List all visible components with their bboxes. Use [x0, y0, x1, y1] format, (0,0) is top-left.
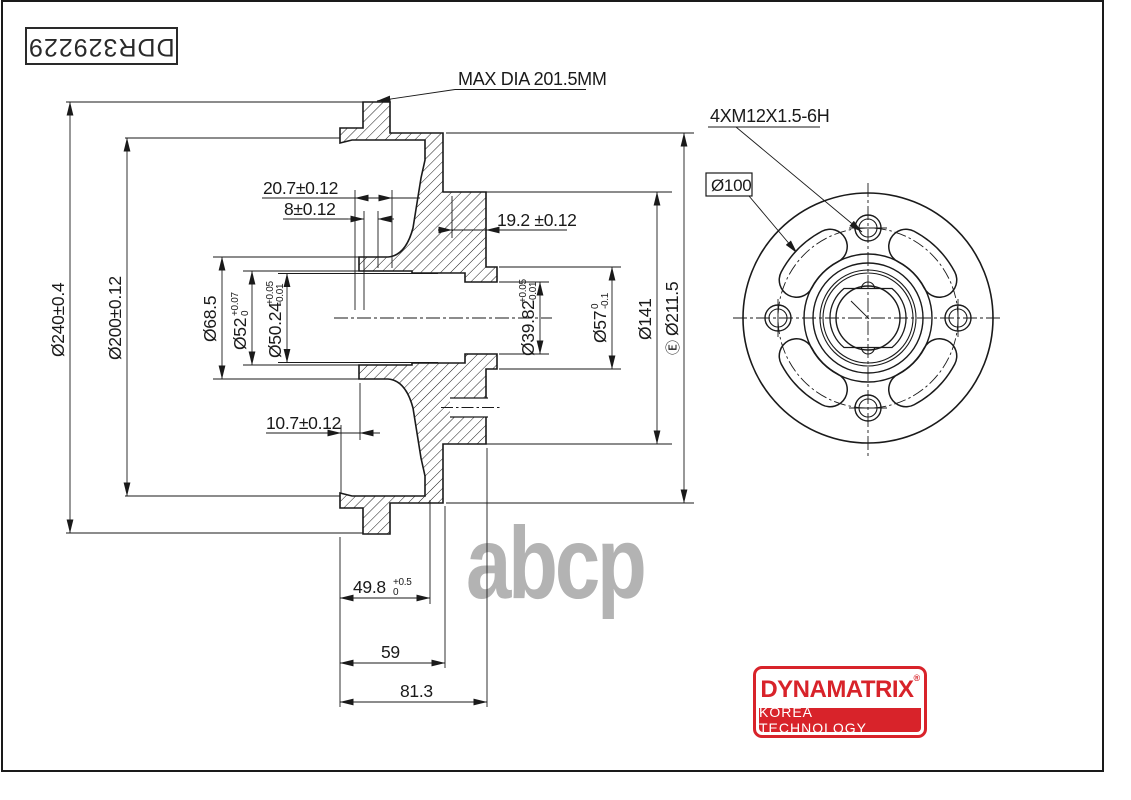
svg-text:Ø211.5: Ø211.5 [662, 282, 682, 336]
svg-text:Ø39.82: Ø39.82 [518, 300, 538, 356]
drawing-sheet: abcp DDR329229 DYNAMATRIX® KOREA TECHNOL… [0, 0, 1131, 800]
dim-l49-8: 49.8 +0.5 0 [353, 577, 412, 598]
dim-d50-24: Ø50.24 +0.05 -0.01 [265, 280, 286, 358]
dim-d211-5: Ⓔ Ø211.5 [662, 282, 682, 355]
dim-d68-5: Ø68.5 [200, 296, 220, 342]
dim-d57: Ø57 0 -0.1 [590, 292, 611, 343]
technical-drawing: MAX DIA 201.5MM 4XM12X1.5-6H Ø100 Ø240±0… [0, 0, 1131, 800]
bolt-circle-label: Ø100 [711, 176, 751, 195]
part-number: DDR329229 [28, 32, 175, 61]
dim-l81-3: 81.3 [400, 681, 433, 701]
dim-l8: 8±0.12 [284, 199, 336, 219]
brand-name: DYNAMATRIX® [756, 669, 924, 706]
brand-logo: DYNAMATRIX® KOREA TECHNOLOGY [753, 666, 927, 738]
svg-text:0: 0 [240, 310, 251, 316]
svg-text:49.8: 49.8 [353, 577, 386, 597]
thread-label: 4XM12X1.5-6H [710, 106, 829, 126]
svg-text:Ø50.24: Ø50.24 [265, 302, 285, 358]
svg-text:Ⓔ: Ⓔ [665, 340, 682, 355]
dim-d200: Ø200±0.12 [105, 276, 125, 360]
dim-l19-2: 19.2 ±0.12 [497, 210, 577, 230]
dim-l59: 59 [381, 642, 400, 662]
brand-tagline: KOREA TECHNOLOGY [759, 708, 921, 732]
svg-text:Ø57: Ø57 [590, 311, 610, 343]
dim-d240: Ø240±0.4 [48, 282, 68, 357]
dim-d52: Ø52 +0.07 0 [230, 291, 251, 350]
svg-text:Ø52: Ø52 [230, 318, 250, 350]
svg-text:-0.01: -0.01 [528, 281, 539, 303]
svg-text:-0.1: -0.1 [600, 292, 611, 309]
svg-text:-0.01: -0.01 [275, 283, 286, 305]
brand-text: DYNAMATRIX [760, 676, 913, 704]
front-view [733, 183, 1003, 456]
registered-mark: ® [914, 673, 920, 683]
dim-l20-7: 20.7±0.12 [263, 178, 338, 198]
dim-d141: Ø141 [635, 298, 655, 340]
part-number-box: DDR329229 [25, 27, 178, 65]
max-dia-label: MAX DIA 201.5MM [458, 69, 607, 89]
svg-text:0: 0 [393, 587, 399, 598]
dim-l10-7: 10.7±0.12 [266, 413, 341, 433]
dim-d39-82: Ø39.82 +0.05 -0.01 [518, 278, 539, 356]
